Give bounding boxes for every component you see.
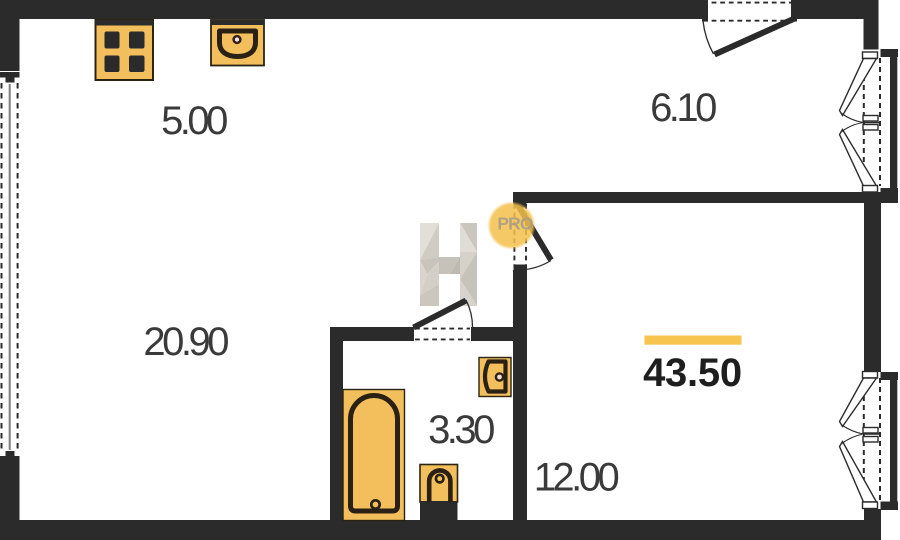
svg-text:5.00: 5.00 bbox=[161, 99, 227, 143]
svg-text:3.30: 3.30 bbox=[428, 408, 494, 452]
svg-text:12.00: 12.00 bbox=[534, 456, 619, 500]
svg-text:PRO: PRO bbox=[497, 214, 533, 234]
svg-text:6.10: 6.10 bbox=[650, 86, 716, 130]
svg-text:20.90: 20.90 bbox=[143, 320, 228, 364]
svg-text:43.50: 43.50 bbox=[643, 351, 742, 395]
